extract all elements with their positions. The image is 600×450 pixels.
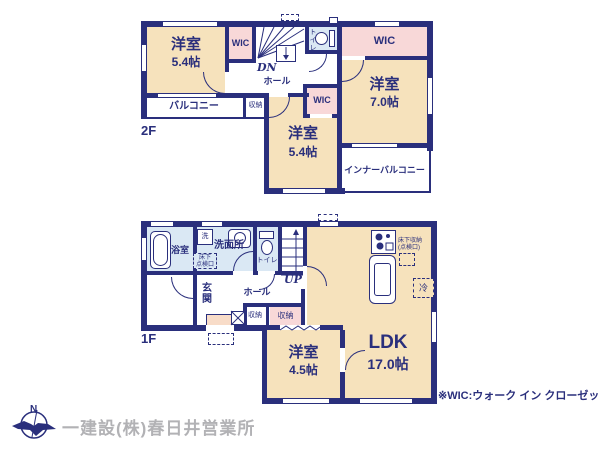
wall-segment <box>225 59 256 63</box>
label-underfloor-storage-2: (点検口) <box>398 245 420 252</box>
room-label-1f-hall: ホール <box>232 287 282 297</box>
svg-text:N: N <box>30 404 37 415</box>
room-label-2f-bedroom-s: 洋室 <box>269 125 337 142</box>
label-closet-a: 収納 <box>243 312 267 320</box>
window <box>360 398 412 404</box>
entrance-door-opening <box>206 325 234 331</box>
window <box>163 21 217 27</box>
room-label-2f-hall: ホール <box>252 76 302 86</box>
room-label-1f-washroom: 洗面所 <box>205 240 253 252</box>
room-area-1f-ldk: 17.0帖 <box>345 356 431 372</box>
room-label-1f-bedroom: 洋室 <box>267 344 340 361</box>
room-label-2f-toilet: トイレ <box>308 28 316 52</box>
wall-segment <box>243 303 305 307</box>
room-label-1f-bath: 浴室 <box>166 245 194 255</box>
wall-segment <box>253 227 257 273</box>
window <box>320 221 338 227</box>
label-closet-b: 収納 <box>269 311 302 320</box>
stairs-up-label: UP <box>284 274 302 287</box>
toilet-tank-icon <box>259 231 274 239</box>
window <box>283 398 329 404</box>
room-label-2f-bedroom-nw: 洋室 <box>147 36 225 53</box>
room-area-1f-bedroom: 4.5帖 <box>267 364 340 378</box>
label-underfloor-storage-1: 床下収納 <box>398 238 422 245</box>
window <box>427 78 433 114</box>
room-area-2f-bedroom-s: 5.4帖 <box>269 146 337 160</box>
room-label-2f-inner-balcony: インナーバルコニー <box>342 165 427 175</box>
wall-segment <box>141 325 267 331</box>
underfloor-storage-hatch <box>399 253 415 266</box>
window <box>141 238 147 260</box>
folding-door-icon <box>280 325 320 331</box>
stairs-dn-label: DN <box>257 62 277 75</box>
toilet-bowl-icon <box>315 32 328 45</box>
stove-burners-icon <box>371 230 396 254</box>
wall-segment <box>303 227 307 268</box>
porch-step <box>208 333 234 345</box>
compass-north-icon: N <box>10 398 58 446</box>
door-opening <box>310 114 332 118</box>
floor-label-2f: 2F <box>141 124 156 139</box>
vent-marker <box>281 14 299 21</box>
kitchen-sink-icon <box>374 263 391 296</box>
room-label-2f-wic-top: WIC <box>227 38 254 48</box>
company-name: 一建設(株)春日井営業所 <box>62 419 255 439</box>
room-label-1f-ldk: LDK <box>345 332 431 354</box>
room-area-2f-bedroom-e: 7.0帖 <box>342 96 427 110</box>
label-fridge: 冷 <box>413 278 434 298</box>
vent-marker <box>318 214 338 221</box>
floor-label-1f: 1F <box>141 332 156 347</box>
inner-balcony-rail <box>429 149 431 193</box>
room-label-2f-bedroom-e: 洋室 <box>342 76 427 93</box>
label-underfloor-hatch-2: 点検口 <box>193 262 217 269</box>
label-underfloor-hatch-1: 床下 <box>193 255 217 262</box>
window <box>431 312 437 342</box>
window <box>158 93 216 98</box>
door-arc <box>309 54 327 72</box>
inner-balcony-rail <box>342 191 431 193</box>
door-opening <box>233 271 253 275</box>
toilet-tank-icon <box>329 30 335 47</box>
window <box>151 221 173 227</box>
vent-marker <box>329 17 338 24</box>
room-label-2f-wic-right: WIC <box>342 35 427 48</box>
door-arc <box>171 277 193 299</box>
room-area-2f-bedroom-nw: 5.4帖 <box>147 56 225 70</box>
window <box>352 143 397 148</box>
wic-footnote: ※WIC:ウォーク イン クローゼット <box>438 390 600 403</box>
wall-segment <box>288 93 309 97</box>
toilet-bowl-icon <box>261 240 273 255</box>
stairs-down-arrow-icon <box>276 45 296 62</box>
wall-segment <box>193 275 197 327</box>
window <box>283 188 325 194</box>
room-label-2f-balcony: バルコニー <box>145 101 243 113</box>
window <box>375 21 399 27</box>
wall-segment <box>365 56 431 60</box>
balcony-rail <box>141 117 269 119</box>
floor-plan-canvas: 洋室 5.4帖 WIC DN ホール トイレ WIC 洋室 7.0帖 バルコニー… <box>0 0 600 450</box>
wall-segment <box>301 289 305 329</box>
room-label-1f-toilet: トイレ <box>254 257 280 265</box>
window <box>202 221 222 227</box>
room-label-2f-wic-mid: WIC <box>307 95 337 105</box>
room-label-1f-entrance: 玄関 <box>199 282 211 304</box>
room-label-2f-closet: 収納 <box>243 102 268 110</box>
wall-segment <box>303 84 341 88</box>
